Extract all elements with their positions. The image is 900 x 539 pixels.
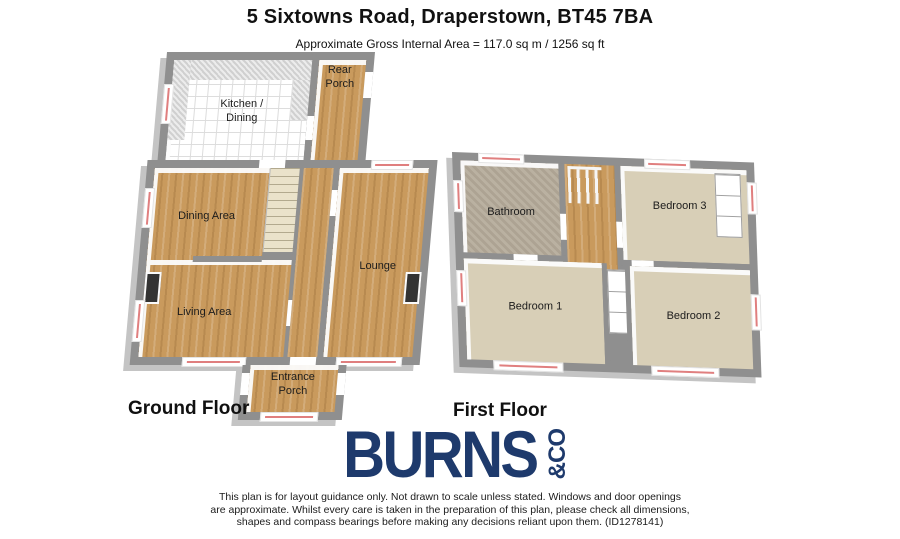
window: [260, 412, 319, 422]
room-label-living: Living Area: [154, 306, 254, 320]
agency-logo: BURNS &CO: [0, 424, 900, 485]
window: [747, 182, 758, 214]
room-label-bathroom: Bathroom: [468, 206, 554, 220]
ground-main-block: Dining Area Living Area Lounge: [130, 160, 438, 365]
room-label-bedroom1: Bedroom 1: [483, 301, 587, 315]
room-label-kitchen: Kitchen / Dining: [187, 98, 297, 126]
disclaimer-line: are approximate. Whilst every care is ta…: [0, 504, 900, 517]
door-opening: [259, 160, 286, 168]
stove: [143, 272, 162, 304]
window: [478, 153, 524, 165]
window: [181, 357, 246, 367]
logo-burns-text: BURNS: [343, 424, 536, 485]
window: [651, 366, 719, 378]
disclaimer-line: This plan is for layout guidance only. N…: [0, 491, 900, 504]
stair-railing: [567, 166, 602, 204]
window: [493, 360, 563, 372]
area-subtitle: Approximate Gross Internal Area = 117.0 …: [0, 37, 900, 51]
dining-living-divider: [193, 256, 263, 262]
window: [644, 159, 690, 171]
room-label-rear-porch: Rear Porch: [315, 64, 365, 92]
window: [751, 294, 762, 330]
kitchen-block: Kitchen / Dining Rear Porch: [157, 52, 375, 168]
room-label-bedroom3: Bedroom 3: [634, 200, 726, 214]
first-floor-plan: Bathroom Bedroom 3 Bedroom 1 Bedroom 2: [452, 152, 762, 378]
window: [453, 180, 464, 212]
disclaimer-text: This plan is for layout guidance only. N…: [0, 491, 900, 529]
kitchen-counter: [173, 60, 313, 80]
door-opening: [336, 373, 346, 395]
room-label-bedroom2: Bedroom 2: [644, 310, 744, 324]
window: [371, 160, 414, 170]
fireplace: [403, 272, 422, 304]
entrance-porch-block: Entrance Porch: [238, 365, 347, 420]
page-title: 5 Sixtowns Road, Draperstown, BT45 7BA: [0, 6, 900, 29]
ground-floor-caption: Ground Floor: [128, 398, 249, 420]
floorplan-page: 5 Sixtowns Road, Draperstown, BT45 7BA A…: [0, 0, 900, 539]
ground-floor-plan: Kitchen / Dining Rear Porch: [62, 52, 475, 427]
room-label-lounge: Lounge: [340, 260, 415, 274]
door-opening: [290, 357, 317, 365]
window: [456, 270, 467, 306]
room-label-entrance-porch: Entrance Porch: [249, 371, 337, 399]
disclaimer-line: shapes and compass bearings before makin…: [0, 516, 900, 529]
logo-andco-text: &CO: [546, 429, 570, 479]
room-label-dining: Dining Area: [157, 210, 257, 224]
